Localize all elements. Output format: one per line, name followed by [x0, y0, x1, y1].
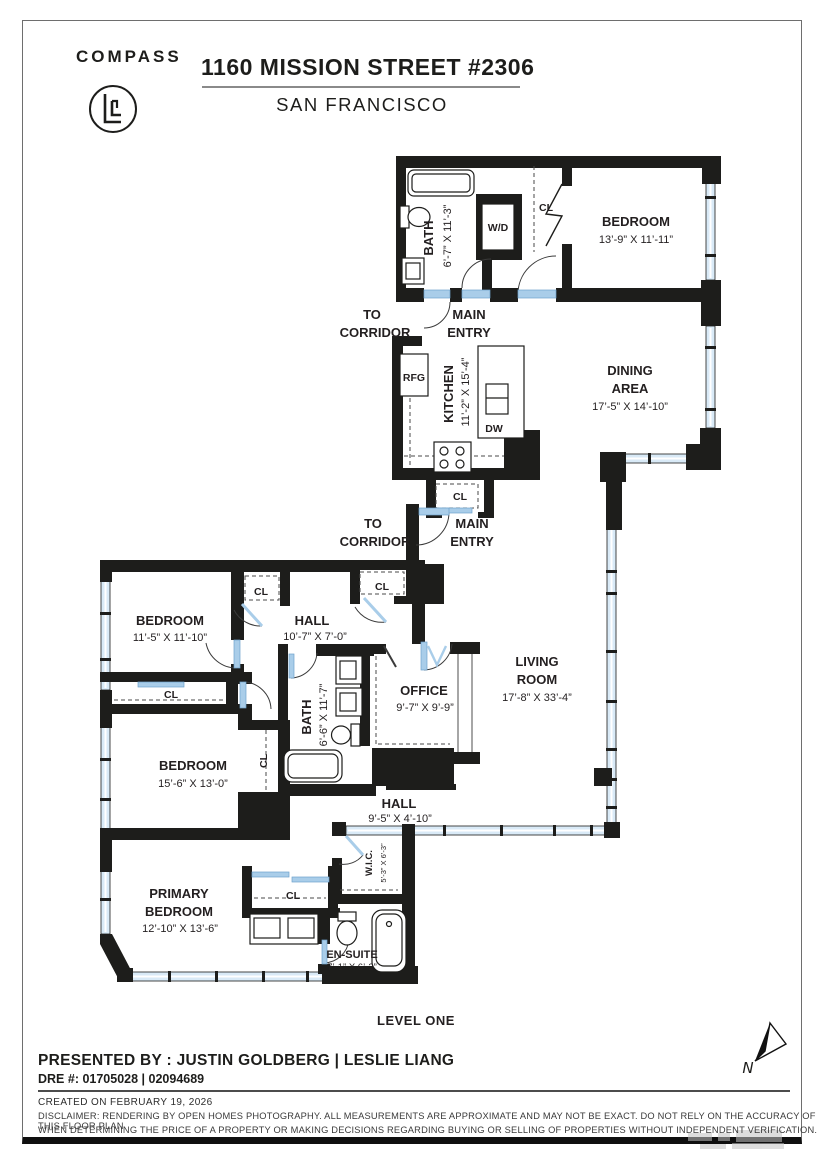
room-label-primary-name2: BEDROOM	[145, 904, 213, 919]
floor-plan-page: COMPASS 1160 MISSION STREET #2306 SAN FR…	[0, 0, 824, 1164]
room-label-dining-dims: 17’-5” X 14’-10”	[592, 401, 668, 413]
room-label-living-dims: 17’-8” X 33’-4”	[502, 692, 572, 704]
room-label-bath2-dims: 6’-6” X 11’-7”	[318, 683, 330, 746]
disclaimer-line-2: WHEN DETERMINING THE PRICE OF A PROPERTY…	[38, 1125, 817, 1135]
room-label-living-name1: LIVING	[515, 654, 558, 669]
main-entry1-line2: ENTRY	[447, 325, 491, 340]
room-label-bedroom2-name: BEDROOM	[136, 613, 204, 628]
closet-label-5: CL	[164, 689, 179, 701]
refrigerator-label: RFG	[403, 372, 425, 384]
north-arrow-icon: N	[742, 1023, 786, 1077]
room-label-bath2-name: BATH	[299, 699, 314, 734]
washer-dryer-label: W/D	[488, 222, 509, 234]
presented-by-line: PRESENTED BY : JUSTIN GOLDBERG | LESLIE …	[38, 1052, 454, 1070]
room-label-hall1-dims: 10’-7” X 7’-0”	[283, 631, 347, 643]
bifold-closet-doors	[546, 184, 562, 246]
room-label-dining-name1: DINING	[607, 363, 653, 378]
room-label-wic-name: W.I.C.	[364, 850, 375, 876]
main-entry2-line1: MAIN	[455, 516, 488, 531]
footer-divider	[38, 1090, 790, 1092]
north-label: N	[742, 1059, 753, 1077]
main-entry2-line2: ENTRY	[450, 534, 494, 549]
room-label-hall2-dims: 9’-5” X 4’-10”	[368, 813, 432, 825]
to-corridor2-line1: TO	[364, 516, 382, 531]
room-label-office-name: OFFICE	[400, 683, 448, 698]
room-label-ensuite-dims: 7’-1” X 6’-2”	[327, 962, 377, 973]
room-label-dining-name2: AREA	[612, 381, 649, 396]
main-entry1-line1: MAIN	[452, 307, 485, 322]
room-label-bath1-dims: 6’-7” X 11’-3”	[442, 204, 454, 267]
closet-label-2: CL	[453, 491, 468, 503]
room-label-bedroom3-name: BEDROOM	[159, 758, 227, 773]
to-corridor1-line1: TO	[363, 307, 381, 322]
room-label-primary-name1: PRIMARY	[149, 886, 209, 901]
closet-label-7: CL	[286, 890, 301, 902]
room-label-bedroom2-dims: 11’-5” X 11’-10”	[133, 632, 208, 644]
dishwasher-label: DW	[485, 423, 503, 435]
created-date: CREATED ON FEBRUARY 19, 2026	[38, 1097, 213, 1108]
room-label-hall2-name: HALL	[382, 796, 417, 811]
closet-label-3: CL	[375, 581, 390, 593]
room-label-bedroom3-dims: 15’-6” X 13’-0”	[158, 778, 228, 790]
closet-label-6: CL	[258, 753, 270, 768]
to-corridor1-line2: CORRIDOR	[340, 325, 411, 340]
room-label-office-dims: 9’-7” X 9’-9”	[396, 702, 454, 714]
dre-numbers: DRE #: 01705028 | 02094689	[38, 1072, 204, 1086]
room-label-living-name2: ROOM	[517, 672, 557, 687]
closet-label-1: CL	[539, 202, 554, 214]
room-label-kitchen-dims: 11’-2” X 15’-4”	[460, 357, 472, 426]
level-label: LEVEL ONE	[377, 1013, 455, 1028]
room-label-wic-dims: 5’-3” X 6’-3”	[379, 843, 388, 883]
room-label-kitchen-name: KITCHEN	[441, 365, 456, 423]
room-label-bath1-name: BATH	[421, 220, 436, 255]
room-label-primary-dims: 12’-10” X 13’-6”	[142, 923, 218, 935]
floor-plan-drawing: BATH 6’-7” X 11’-3” W/D CL BEDROOM 13’-9…	[0, 0, 824, 1164]
closet-label-4: CL	[254, 586, 269, 598]
to-corridor2-line2: CORRIDOR	[340, 534, 411, 549]
room-label-bedroom1-dims: 13’-9” X 11’-11”	[599, 234, 674, 246]
room-label-hall1-name: HALL	[295, 613, 330, 628]
room-label-bedroom1-name: BEDROOM	[602, 214, 670, 229]
room-label-ensuite-name: EN-SUITE	[326, 949, 377, 961]
